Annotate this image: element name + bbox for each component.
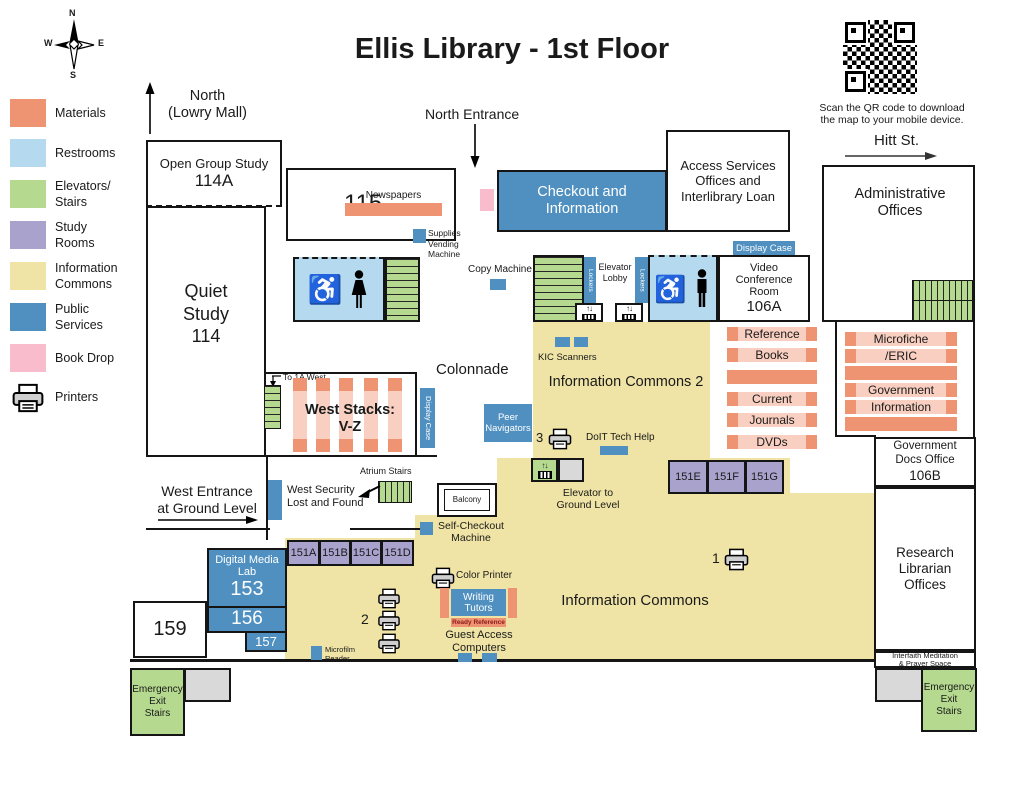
room-number: 156 <box>231 608 263 630</box>
shelf-label: Microfiche <box>874 332 929 346</box>
legend-label: Book Drop <box>55 351 114 367</box>
wall <box>350 528 420 530</box>
microfilm-reader <box>311 646 322 660</box>
room-157: 157 <box>245 631 287 652</box>
printer-icon <box>377 633 401 654</box>
shelf-label: DVDs <box>756 435 787 449</box>
hitt-st-label: Hitt St. <box>874 132 919 150</box>
atrium-stairs-label: Atrium Stairs <box>360 466 412 477</box>
room-number: 151G <box>751 471 778 484</box>
shelf-eric: /ERIC <box>845 349 957 363</box>
room-number: 151B <box>322 547 348 560</box>
color-printer-label: Color Printer <box>456 570 512 582</box>
study-room-151f: 151F <box>707 460 746 494</box>
room-number: 151A <box>291 547 317 560</box>
shelf <box>727 370 817 384</box>
shelf-reference: Reference <box>727 327 817 341</box>
legend-swatch-information-commons <box>10 262 46 290</box>
tutor-shelf <box>508 588 517 618</box>
printer-icon <box>548 428 572 450</box>
elevator-shaft <box>558 458 584 482</box>
checkout-information-desk: Checkout and Information <box>497 170 667 232</box>
copy-machine-label: Copy Machine <box>468 264 532 276</box>
study-room-151c: 151C <box>350 540 382 566</box>
room-label: Video Conference Room <box>736 262 793 298</box>
legend-swatch-public-services <box>10 303 46 331</box>
shelf-label: Journals <box>749 413 794 427</box>
wheelchair-icon: ♿ <box>654 276 686 302</box>
room-label: Open Group Study <box>160 156 268 171</box>
shelf-label: /ERIC <box>885 349 917 363</box>
information-commons-2-label: Information Commons 2 <box>540 374 712 391</box>
study-room-151a: 151A <box>287 540 320 566</box>
wheelchair-icon: ♿ <box>308 276 343 304</box>
north-lowry-label: North (Lowry Mall) <box>160 88 255 122</box>
information-commons-area <box>790 493 875 660</box>
legend-label: Elevators/ Stairs <box>55 179 111 210</box>
copy-machine <box>490 279 506 290</box>
elevator-lobby-label: Elevator Lobby <box>596 262 634 283</box>
shelf <box>845 417 957 431</box>
peer-navigators-desk: Peer Navigators <box>484 404 532 442</box>
legend-label: Study Rooms <box>55 220 95 251</box>
room-digital-media-lab-153: Digital Media Lab 153 <box>207 548 287 608</box>
emergency-exit-stairs-west: Emergency Exit Stairs <box>130 668 185 736</box>
writing-tutors-desk: Writing Tutors <box>451 589 506 616</box>
vestibule <box>875 668 923 702</box>
qr-code <box>841 18 919 96</box>
room-number: 151D <box>384 547 410 560</box>
emergency-exit-stairs-east: Emergency Exit Stairs <box>921 668 977 732</box>
printer-2-label: 2 <box>361 611 369 628</box>
room-interfaith: Interfaith Meditation & Prayer Space <box>874 651 976 668</box>
room-number: 159 <box>153 618 186 642</box>
legend-swatch-study-rooms <box>10 221 46 249</box>
room-government-docs-106b: Government Docs Office 106B <box>874 437 976 487</box>
newspapers-shelf <box>345 203 442 216</box>
display-case-vertical: Display Case <box>420 388 435 448</box>
west-entrance-label: West Entrance at Ground Level <box>152 483 262 516</box>
printer-icon <box>724 548 749 571</box>
stairs <box>912 280 973 301</box>
legend-swatch-restrooms <box>10 139 46 167</box>
atrium-stairs-arrow-icon <box>356 481 382 503</box>
room-label: Checkout and Information <box>537 184 626 218</box>
room-video-conference-106a: Video Conference Room 106A <box>718 255 810 322</box>
man-icon <box>692 269 712 309</box>
north-arrow-icon <box>143 82 157 134</box>
room-number: 151E <box>675 471 701 484</box>
supplies-vending-label: Supplies Vending Machine <box>428 228 461 260</box>
room-number: 106A <box>746 298 781 316</box>
room-label: Digital Media Lab <box>215 554 279 578</box>
room-number: 114A <box>195 171 233 191</box>
writing-tutors-label: Writing Tutors <box>463 592 494 614</box>
legend-label: Information Commons <box>55 261 118 292</box>
elevator-to-ground-label: Elevator to Ground Level <box>540 487 636 512</box>
printer-icon <box>377 588 401 609</box>
legend-swatch-elevators-stairs <box>10 180 46 208</box>
shelf <box>845 366 957 380</box>
room-number: 153 <box>230 578 263 602</box>
compass-icon: N W E S <box>42 6 106 82</box>
legend-label: Restrooms <box>55 146 115 162</box>
west-security-label: West Security Lost and Found <box>287 484 363 510</box>
kic-scanner <box>555 337 570 347</box>
printer-icon <box>11 383 45 413</box>
wall <box>973 322 975 437</box>
lockers: Lockers <box>584 257 596 303</box>
room-label: Interfaith Meditation & Prayer Space <box>892 652 958 668</box>
printer-icon <box>377 610 401 631</box>
wall <box>415 372 417 457</box>
room-number: 151C <box>353 547 379 560</box>
printer-1-label: 1 <box>712 550 720 567</box>
guest-access-label: Guest Access Computers <box>445 629 513 655</box>
floor-map: Ellis Library - 1st Floor N W E S Scan t… <box>0 0 1024 791</box>
wall <box>146 528 270 530</box>
information-commons-label: Information Commons <box>545 592 725 610</box>
room-access-services: Access Services Offices and Interlibrary… <box>666 130 790 232</box>
shelf-label: Government <box>868 383 934 397</box>
shelf-current: Current <box>727 392 817 406</box>
shelf-information: Information <box>845 400 957 414</box>
display-case-label: Display Case <box>736 243 792 254</box>
restroom-east: ♿ <box>648 255 718 322</box>
study-room-151b: 151B <box>319 540 351 566</box>
balcony: Balcony <box>437 483 497 517</box>
legend-swatch-book-drop <box>10 344 46 372</box>
room-number: 151F <box>714 471 739 484</box>
printer-icon <box>431 567 455 589</box>
stairs <box>912 300 973 321</box>
legend-label: Materials <box>55 106 106 122</box>
room-156: 156 <box>207 606 287 633</box>
hitt-st-arrow-icon <box>845 150 937 162</box>
guest-computer <box>458 653 472 662</box>
stairs <box>385 257 420 322</box>
legend-swatch-materials <box>10 99 46 127</box>
study-room-151d: 151D <box>381 540 414 566</box>
room-number: 106B <box>909 468 941 484</box>
shelf-label: Current <box>752 392 792 406</box>
shelf-dvds: DVDs <box>727 435 817 449</box>
north-entrance-label: North Entrance <box>425 106 519 123</box>
stairs <box>264 385 281 429</box>
room-label: Emergency Exit Stairs <box>132 684 183 719</box>
shelf-label: Books <box>755 348 788 362</box>
room-label: Government Docs Office <box>893 440 956 467</box>
shelf-government: Government <box>845 383 957 397</box>
peer-navigators-label: Peer Navigators <box>485 412 530 434</box>
room-159: 159 <box>133 601 207 658</box>
kic-scanner <box>574 337 588 347</box>
microfilm-reader-label: Microfilm Reader <box>325 646 355 664</box>
ready-reference-label: Ready Reference <box>452 619 505 627</box>
ready-reference-shelf: Ready Reference <box>451 618 506 627</box>
guest-computer <box>482 653 497 662</box>
north-entrance-arrow-icon <box>468 124 482 168</box>
balcony-label: Balcony <box>453 495 481 504</box>
kic-scanners-label: KIC Scanners <box>538 352 597 363</box>
shelf-books: Books <box>727 348 817 362</box>
qr-caption: Scan the QR code to download the map to … <box>812 102 972 127</box>
legend-label: Printers <box>55 390 98 406</box>
lockers-label: Lockers <box>638 269 646 292</box>
tutor-shelf <box>440 588 449 618</box>
self-checkout-machine <box>420 522 433 535</box>
newspapers-label: Newspapers <box>345 190 442 202</box>
west-stacks-label: West Stacks: V-Z <box>298 402 402 436</box>
doit-tech-help-desk <box>600 446 628 455</box>
room-label: Administrative Offices <box>845 186 955 220</box>
balcony-inner: Balcony <box>444 489 490 511</box>
printer-3-label: 3 <box>536 430 543 445</box>
shelf-microfiche: Microfiche <box>845 332 957 346</box>
woman-icon <box>348 270 370 310</box>
room-label: Research Librarian Offices <box>896 545 954 593</box>
lockers-label: Lockers <box>586 269 594 292</box>
shelf-label: Information <box>871 400 931 414</box>
west-entrance-arrow-icon <box>158 514 258 526</box>
room-open-group-study-114a: Open Group Study 114A <box>146 140 282 207</box>
atrium-stairs <box>378 481 412 503</box>
study-room-151g: 151G <box>745 460 784 494</box>
legend-label: Public Services <box>55 302 103 333</box>
elevator-icon: ↑↓ <box>575 303 603 322</box>
shelf-label: Reference <box>744 327 799 341</box>
room-label: Emergency Exit Stairs <box>924 682 975 717</box>
restroom-west: ♿ <box>293 257 385 322</box>
supplies-vending-machine <box>413 229 426 243</box>
book-drop <box>480 189 494 211</box>
wall <box>130 659 975 662</box>
lockers: Lockers <box>635 257 648 303</box>
self-checkout-label: Self-Checkout Machine <box>435 520 507 545</box>
room-number: 157 <box>255 634 277 649</box>
room-label: Quiet Study 114 <box>160 280 252 348</box>
room-research-librarian: Research Librarian Offices <box>874 487 976 651</box>
wall <box>835 435 876 437</box>
elevator-icon: ↑↓ <box>531 458 558 482</box>
display-case-label: Display Case <box>423 396 432 440</box>
vestibule <box>184 668 231 702</box>
doit-tech-help-label: DoIT Tech Help <box>586 432 655 444</box>
west-security-desk <box>268 480 282 520</box>
study-room-151e: 151E <box>668 460 708 494</box>
colonnade-label: Colonnade <box>436 361 509 379</box>
elevator-icon: ↑↓ <box>615 303 643 322</box>
shelf-journals: Journals <box>727 413 817 427</box>
room-label: Access Services Offices and Interlibrary… <box>680 158 775 204</box>
